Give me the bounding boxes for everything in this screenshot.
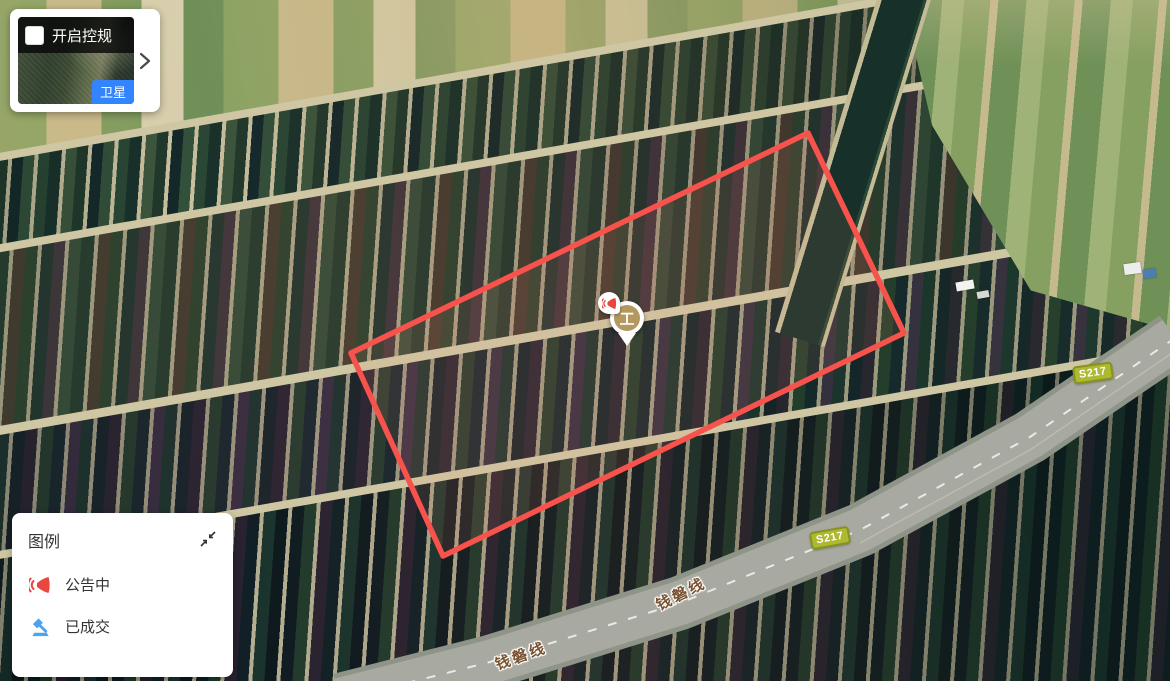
building xyxy=(1123,262,1141,275)
layer-expand-button[interactable] xyxy=(134,51,156,71)
layer-thumbnail[interactable]: 开启控规 卫星 xyxy=(18,17,134,104)
planning-checkbox[interactable] xyxy=(25,26,44,45)
satellite-layer-badge: 卫星 xyxy=(92,80,134,104)
legend-item-announcing: 公告中 xyxy=(28,574,217,595)
layer-switcher[interactable]: 开启控规 卫星 xyxy=(10,9,160,112)
gavel-icon xyxy=(28,616,52,637)
legend-item-label: 已成交 xyxy=(65,616,110,637)
horn-icon xyxy=(28,574,52,595)
pin-label: 工 xyxy=(619,308,634,329)
planning-checkbox-label: 开启控规 xyxy=(52,25,112,46)
legend-collapse-button[interactable] xyxy=(199,530,217,553)
announcement-horn-icon xyxy=(598,292,620,314)
collapse-arrows-icon xyxy=(199,530,217,548)
satellite-map[interactable]: S217 S217 钱磐线 钱磐线 工 开启控规 卫星 xyxy=(0,0,1170,681)
legend-item-sold: 已成交 xyxy=(28,616,217,637)
chevron-right-icon xyxy=(138,51,152,71)
planning-toggle-bar[interactable]: 开启控规 xyxy=(18,17,134,53)
legend-panel: 图例 公告中 xyxy=(12,513,233,677)
legend-title: 图例 xyxy=(28,528,60,552)
building xyxy=(1142,268,1156,279)
legend-item-label: 公告中 xyxy=(65,574,110,595)
